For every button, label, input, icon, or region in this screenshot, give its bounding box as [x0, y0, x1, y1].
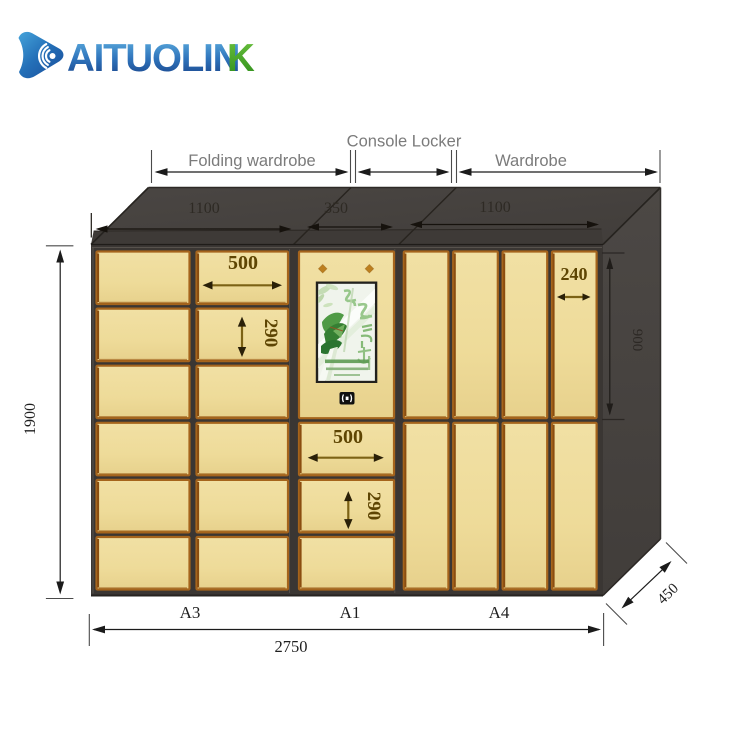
svg-text:290: 290: [363, 492, 384, 521]
svg-text:Wardrobe: Wardrobe: [495, 152, 567, 170]
svg-text:500: 500: [333, 426, 363, 448]
svg-text:900: 900: [629, 329, 645, 352]
svg-text:A4: A4: [489, 603, 510, 622]
svg-text:A3: A3: [180, 603, 201, 622]
svg-text:350: 350: [324, 200, 348, 217]
svg-text:2750: 2750: [275, 637, 308, 656]
svg-text:1100: 1100: [188, 200, 219, 217]
svg-text:A1: A1: [340, 603, 361, 622]
svg-text:1100: 1100: [479, 199, 510, 216]
svg-text:240: 240: [561, 264, 588, 284]
svg-text:290: 290: [260, 319, 281, 348]
svg-text:Console Locker: Console Locker: [347, 133, 462, 151]
svg-text:K: K: [227, 37, 255, 80]
svg-text:AITUOLIN: AITUOLIN: [67, 37, 239, 80]
svg-text:500: 500: [228, 252, 258, 274]
svg-text:1900: 1900: [22, 403, 39, 435]
svg-text:Folding wardrobe: Folding wardrobe: [188, 152, 316, 170]
